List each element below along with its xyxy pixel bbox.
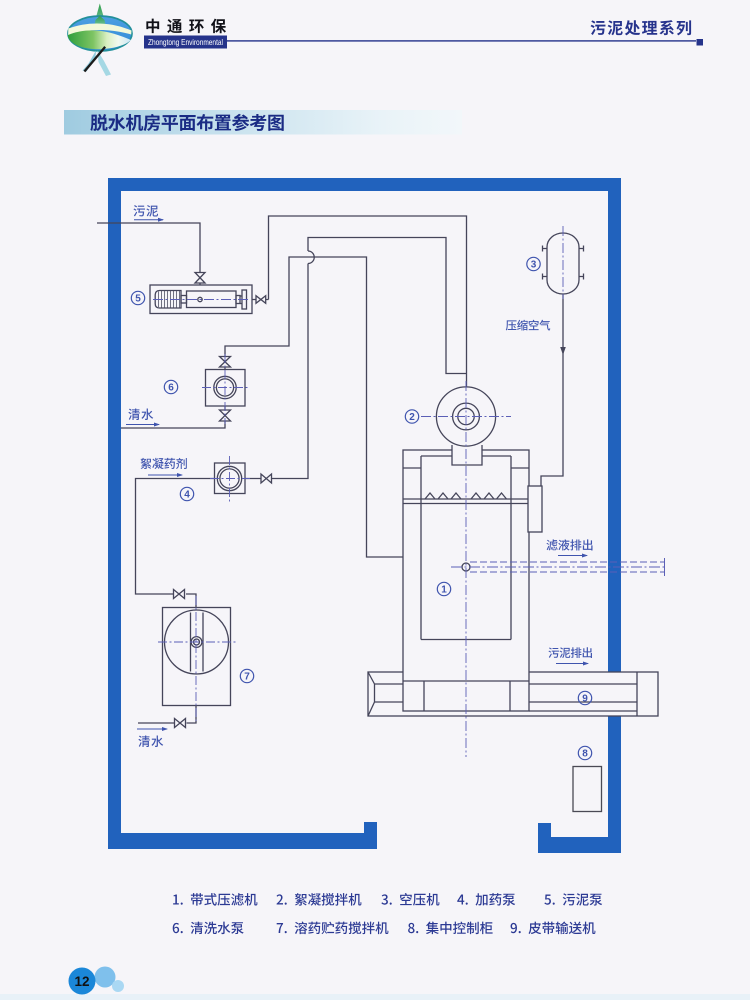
svg-text:Zhongtong Environmental: Zhongtong Environmental bbox=[148, 38, 223, 47]
svg-text:5: 5 bbox=[135, 294, 141, 305]
svg-text:3: 3 bbox=[531, 260, 537, 271]
svg-text:7: 7 bbox=[244, 672, 250, 683]
svg-text:2: 2 bbox=[409, 412, 415, 423]
svg-text:4: 4 bbox=[184, 490, 190, 501]
svg-text:6: 6 bbox=[168, 383, 174, 394]
svg-text:9: 9 bbox=[582, 694, 588, 705]
svg-text:12: 12 bbox=[74, 974, 89, 989]
svg-text:1: 1 bbox=[441, 585, 447, 596]
svg-text:8: 8 bbox=[582, 749, 588, 760]
